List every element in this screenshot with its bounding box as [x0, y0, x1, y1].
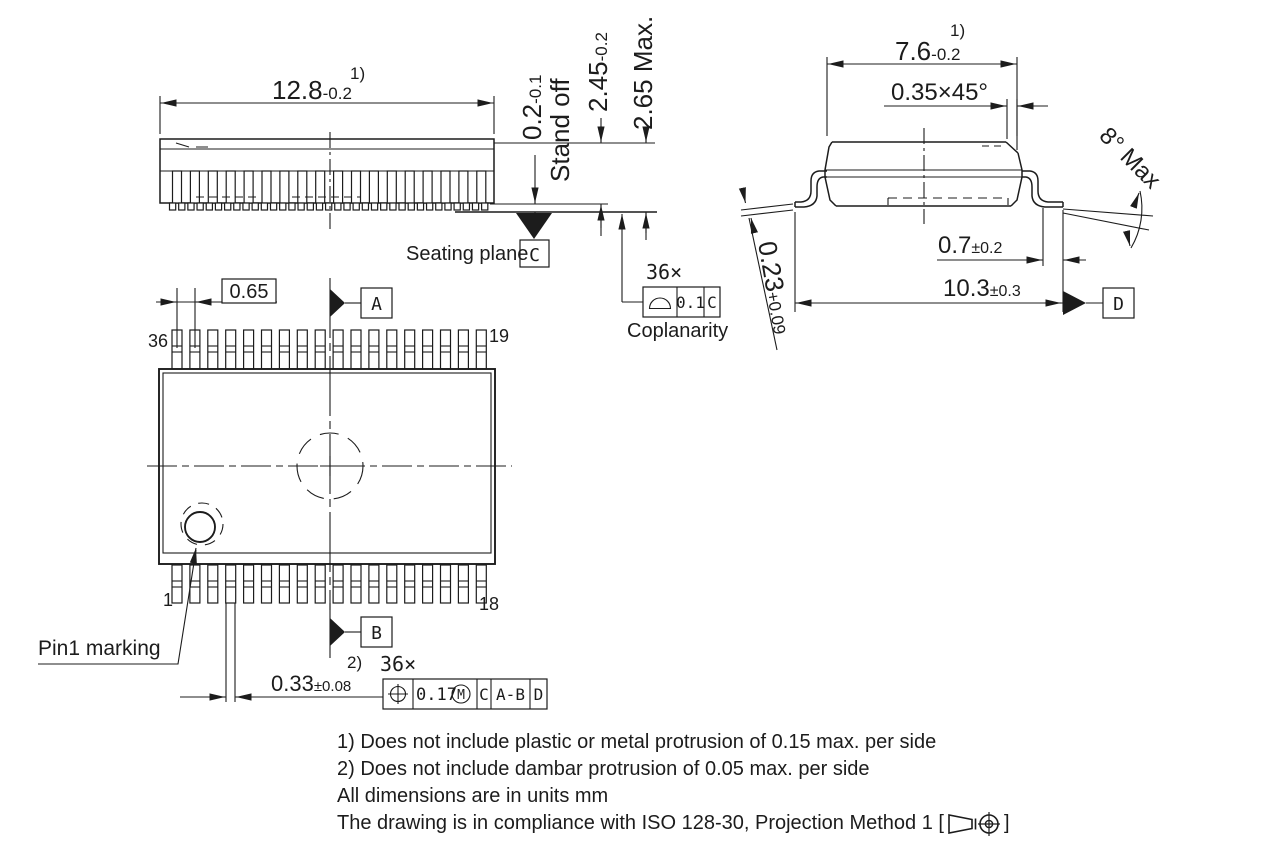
datum-letter: D	[1113, 294, 1124, 315]
dim-text: 0.7±0.2	[938, 232, 1003, 259]
note-line-2: 2) Does not include dambar protrusion of…	[337, 756, 1010, 783]
datum-triangle-icon	[330, 289, 345, 317]
datum-triangle-icon	[1063, 291, 1086, 315]
note-ref: 1)	[950, 21, 965, 40]
dim-text: 10.3±0.3	[943, 275, 1021, 302]
datum-letter: C	[479, 685, 489, 704]
dim-text: 7.6-0.2	[895, 36, 960, 66]
dim-text: 12.8-0.2	[272, 75, 352, 105]
datum-triangle-icon	[330, 618, 345, 646]
pin-number-36: 36	[148, 331, 168, 351]
tolerance-value: 0.17	[416, 685, 457, 705]
datum-letter: C	[529, 245, 540, 266]
count-label: 36×	[646, 260, 682, 284]
datum-b-callout: B	[330, 603, 392, 658]
dim-lead-span: D 10.3±0.3	[795, 212, 1134, 318]
note-line-3: All dimensions are in units mm	[337, 783, 1010, 810]
modifier-letter: M	[457, 688, 465, 703]
dim-text: 0.65	[230, 281, 269, 303]
dim-text: 0.2-0.1	[517, 75, 547, 140]
note-line-1: 1) Does not include plastic or metal pro…	[337, 729, 1010, 756]
pin1-marking-dashed-circle	[181, 503, 223, 545]
coplanarity-callout: 0.1 C 36× Coplanarity	[622, 214, 728, 342]
datum-triangle-icon	[516, 213, 552, 239]
package-body-inner	[163, 373, 491, 553]
dim-text: 2.45-0.2	[583, 32, 613, 112]
drawing-canvas: 12.8-0.2 1) 0.2-0.1 Stand off 2.45-0.2	[0, 0, 1280, 854]
pin1-marking-dot	[185, 512, 215, 542]
dim-text: 0.23+0.09	[752, 239, 798, 336]
drawing-notes: 1) Does not include plastic or metal pro…	[337, 729, 1010, 837]
datum-letter: A	[371, 294, 382, 315]
center-cross	[320, 456, 340, 476]
dim-text: 2.65 Max.	[628, 16, 658, 130]
coplanarity-label: Coplanarity	[627, 320, 728, 342]
dim-overall-height: 2.65 Max.	[628, 16, 658, 240]
side-view-lead-feet	[170, 203, 488, 210]
dim-text: 0.33±0.08	[271, 671, 351, 696]
note-line-4: The drawing is in compliance with ISO 12…	[337, 810, 1010, 837]
tolerance-value: 0.1	[676, 293, 705, 312]
datum-a-callout: A	[330, 288, 392, 318]
gull-wing-lead-left	[795, 171, 827, 207]
first-angle-projection-icon	[947, 811, 1001, 837]
dim-lead-thickness: 0.23+0.09	[741, 191, 798, 350]
pin-number-19: 19	[489, 326, 509, 346]
dim-lead-angle: 8° Max	[1063, 122, 1166, 248]
dim-text: 0.35×45°	[891, 79, 988, 106]
gull-wing-lead-right	[1022, 171, 1063, 207]
datum-letters: A-B	[496, 685, 525, 704]
note-ref: 2)	[347, 653, 362, 672]
count-label: 36×	[380, 652, 416, 676]
datum-letter: B	[371, 623, 382, 644]
standoff-label: Stand off	[545, 78, 575, 182]
note-line-4-text: The drawing is in compliance with ISO 12…	[337, 810, 944, 837]
side-view-leads	[173, 171, 486, 203]
bottom-pin-row	[172, 565, 486, 603]
pin-number-1: 1	[163, 590, 173, 610]
dim-side-width: 12.8-0.2 1)	[160, 64, 494, 134]
pin-number-18: 18	[479, 594, 499, 614]
top-view: 36 19 1 18 0.65 A B	[38, 278, 547, 709]
dim-text: 8° Max	[1094, 122, 1166, 194]
note-line-4-bracket: ]	[1004, 810, 1010, 837]
dim-body-height: 2.45-0.2	[583, 32, 613, 236]
seating-plane-callout: C Seating plane	[406, 213, 552, 267]
top-pin-row	[172, 330, 486, 369]
seating-plane-label: Seating plane	[406, 243, 528, 265]
technical-drawing-page: 12.8-0.2 1) 0.2-0.1 Stand off 2.45-0.2	[0, 0, 1280, 854]
dim-chamfer: 0.35×45°	[884, 79, 1048, 150]
mold-mark	[176, 143, 208, 147]
datum-letter: D	[534, 685, 544, 704]
datum-letter: C	[707, 293, 717, 312]
chamfer-edge	[1006, 142, 1018, 153]
pin1-marking-label: Pin1 marking	[38, 637, 161, 660]
end-view: 7.6-0.2 1) 0.35×45° 8° Max	[741, 21, 1166, 350]
note-ref: 1)	[350, 64, 365, 83]
